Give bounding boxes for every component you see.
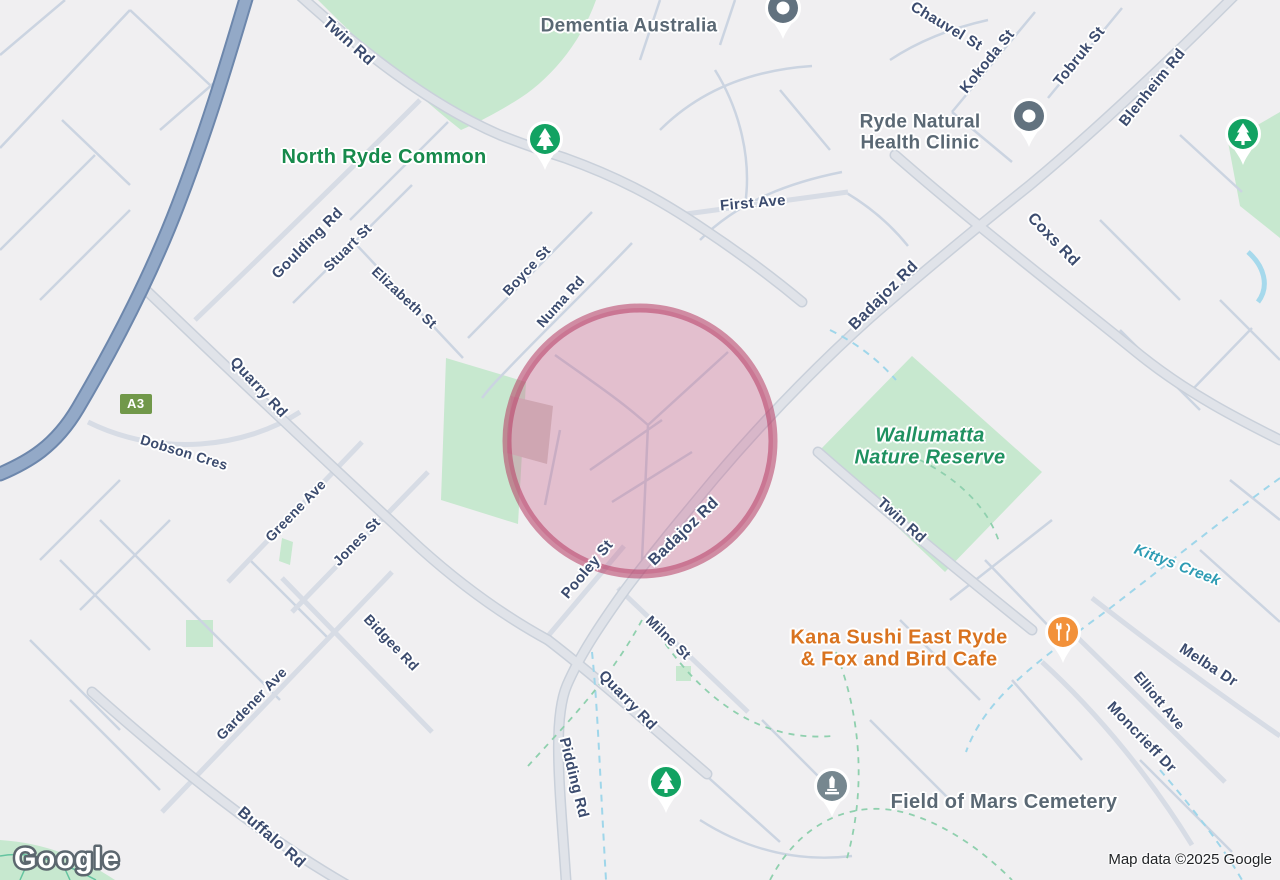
highlight-circle — [507, 308, 773, 574]
dementia-australia-pin[interactable] — [763, 0, 803, 46]
poi-label-ryde-natural[interactable]: Ryde NaturalHealth Clinic — [860, 112, 981, 155]
park-pin-northeast[interactable] — [1223, 115, 1263, 172]
map-canvas[interactable]: Twin RdChauvel StKokoda StTobruk StBlenh… — [0, 0, 1280, 880]
kana-sushi-pin[interactable] — [1043, 613, 1083, 670]
map-attribution: Map data ©2025 Google — [1108, 851, 1272, 868]
park-label-north-ryde-common[interactable]: North Ryde Common — [281, 146, 486, 168]
park-italic-label-wallumatta[interactable]: WallumattaNature Reserve — [855, 425, 1006, 470]
restaurant-label-kana-sushi-east-ryde[interactable]: Kana Sushi East Ryde& Fox and Bird Cafe — [790, 627, 1007, 672]
route-a3-badge: A3 — [120, 394, 152, 414]
north-ryde-common-pin[interactable] — [525, 120, 565, 177]
poi-label-field-of-mars-cemetery[interactable]: Field of Mars Cemetery — [891, 791, 1118, 813]
google-logo-text: Google — [14, 843, 120, 875]
google-logo[interactable]: Google — [10, 836, 140, 880]
ryde-natural-health-clinic-pin[interactable] — [1009, 97, 1049, 154]
poi-label-dementia-australia[interactable]: Dementia Australia — [541, 15, 718, 36]
park-pin-south[interactable] — [646, 763, 686, 820]
map-graphics — [0, 0, 1280, 880]
field-of-mars-cemetery-pin[interactable] — [812, 767, 852, 824]
